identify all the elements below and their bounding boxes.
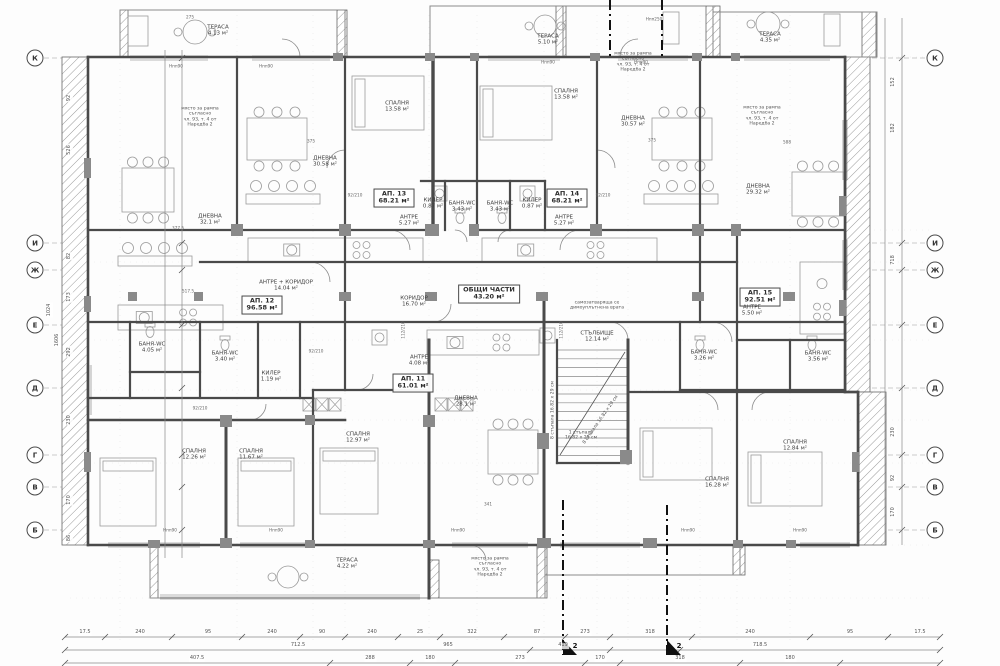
axis-bubble-right-И: И: [927, 235, 944, 252]
axis-bubble-left-В: В: [27, 479, 44, 496]
section-mark: 2: [677, 642, 682, 650]
axis-bubble-left-Б: Б: [27, 522, 44, 539]
axis-bubble-right-В: В: [927, 479, 944, 496]
axis-bubble-left-Д: Д: [27, 380, 44, 397]
axis-bubble-right-Ж: Ж: [927, 262, 944, 279]
section-lines-layer: [563, 0, 681, 655]
thin-lines-layer: [87, 6, 877, 599]
axis-bubble-left-И: И: [27, 235, 44, 252]
floorplan-sheet: АП. 1368.21 м²АП. 1468.21 м²АП. 1296.58 …: [0, 0, 1000, 666]
axis-bubble-right-Г: Г: [927, 447, 944, 464]
axis-bubble-right-Б: Б: [927, 522, 944, 539]
axis-bubble-left-Ж: Ж: [27, 262, 44, 279]
columns-layer: [84, 53, 859, 548]
walls-layer: [88, 57, 858, 598]
furniture-layer: [100, 12, 844, 588]
hatched-walls-layer: [62, 6, 886, 598]
axis-bubble-right-Д: Д: [927, 380, 944, 397]
axis-bubble-left-Е: Е: [27, 317, 44, 334]
dimension-lines-layer: [62, 18, 943, 666]
axis-bubble-right-Е: Е: [927, 317, 944, 334]
axis-bubble-right-К: К: [927, 50, 944, 67]
plan-drawing: [0, 0, 1000, 666]
axis-bubble-left-Г: Г: [27, 447, 44, 464]
axis-bubble-left-К: К: [27, 50, 44, 67]
section-mark: 2: [573, 642, 578, 650]
